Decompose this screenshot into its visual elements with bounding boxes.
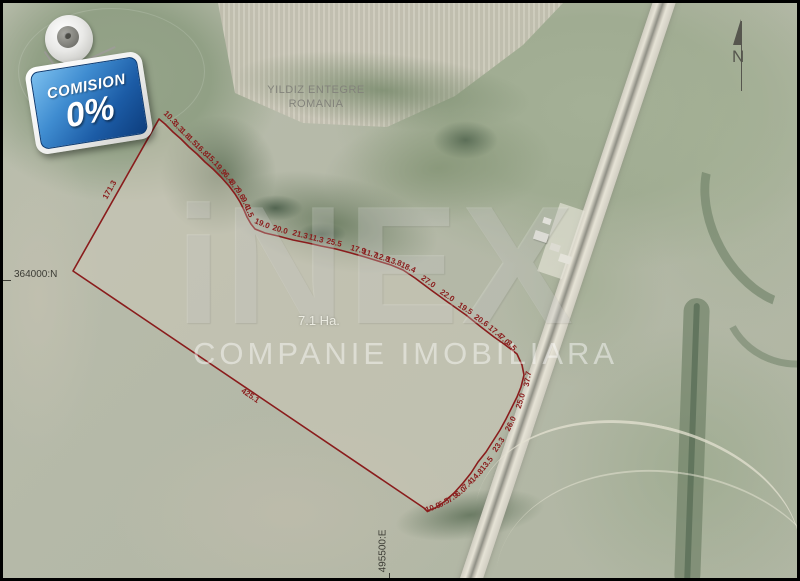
grid-coordinate-north: 364000:N — [14, 269, 57, 280]
commission-badge-group: COMISION 0% — [21, 7, 171, 157]
measurement-label: 11.3 — [308, 233, 325, 245]
measurement-label: 26.0 — [504, 415, 518, 433]
north-arrow-head-icon — [733, 19, 741, 45]
north-letter: N — [732, 47, 744, 67]
grid-tick-north — [3, 280, 11, 281]
north-arrow: N — [726, 17, 758, 95]
pin-dot — [64, 32, 71, 39]
measurement-label: 425.1 — [239, 387, 260, 405]
measurement-label: 20.6 — [472, 313, 489, 328]
measurement-label: 10.9 — [424, 501, 441, 514]
measurement-label: 20.0 — [271, 224, 288, 236]
measurement-label: 22.0 — [438, 288, 455, 303]
measurement-label: 27.0 — [419, 274, 436, 289]
measurement-label: 21.3 — [291, 229, 308, 241]
measurement-label: 25.5 — [325, 237, 342, 249]
commission-badge-panel: COMISION 0% — [30, 56, 149, 150]
grid-coordinate-east: 495500:E — [378, 530, 389, 573]
measurement-label: 37.7 — [523, 371, 534, 388]
measurement-label: 3.5 — [504, 339, 517, 353]
parcel-area-label: 7.1 Ha. — [298, 313, 340, 328]
measurement-label: 25.0 — [515, 392, 527, 409]
measurement-label: 18.4 — [399, 261, 416, 275]
listing-image: iNEX COMPANIE IMOBILIARA 171.3425.110.33… — [0, 0, 800, 581]
grid-tick-east — [389, 573, 390, 581]
measurement-label: 171.3 — [102, 179, 119, 200]
measurement-label: 23.3 — [491, 436, 506, 453]
measurement-label: 1.5 — [243, 205, 255, 218]
badge-text-zero-percent: 0% — [63, 90, 118, 133]
measurement-label: 19.5 — [456, 301, 473, 316]
commission-badge: COMISION 0% — [24, 50, 154, 155]
pin-icon — [45, 15, 93, 63]
measurement-label: 19.0 — [253, 217, 270, 230]
